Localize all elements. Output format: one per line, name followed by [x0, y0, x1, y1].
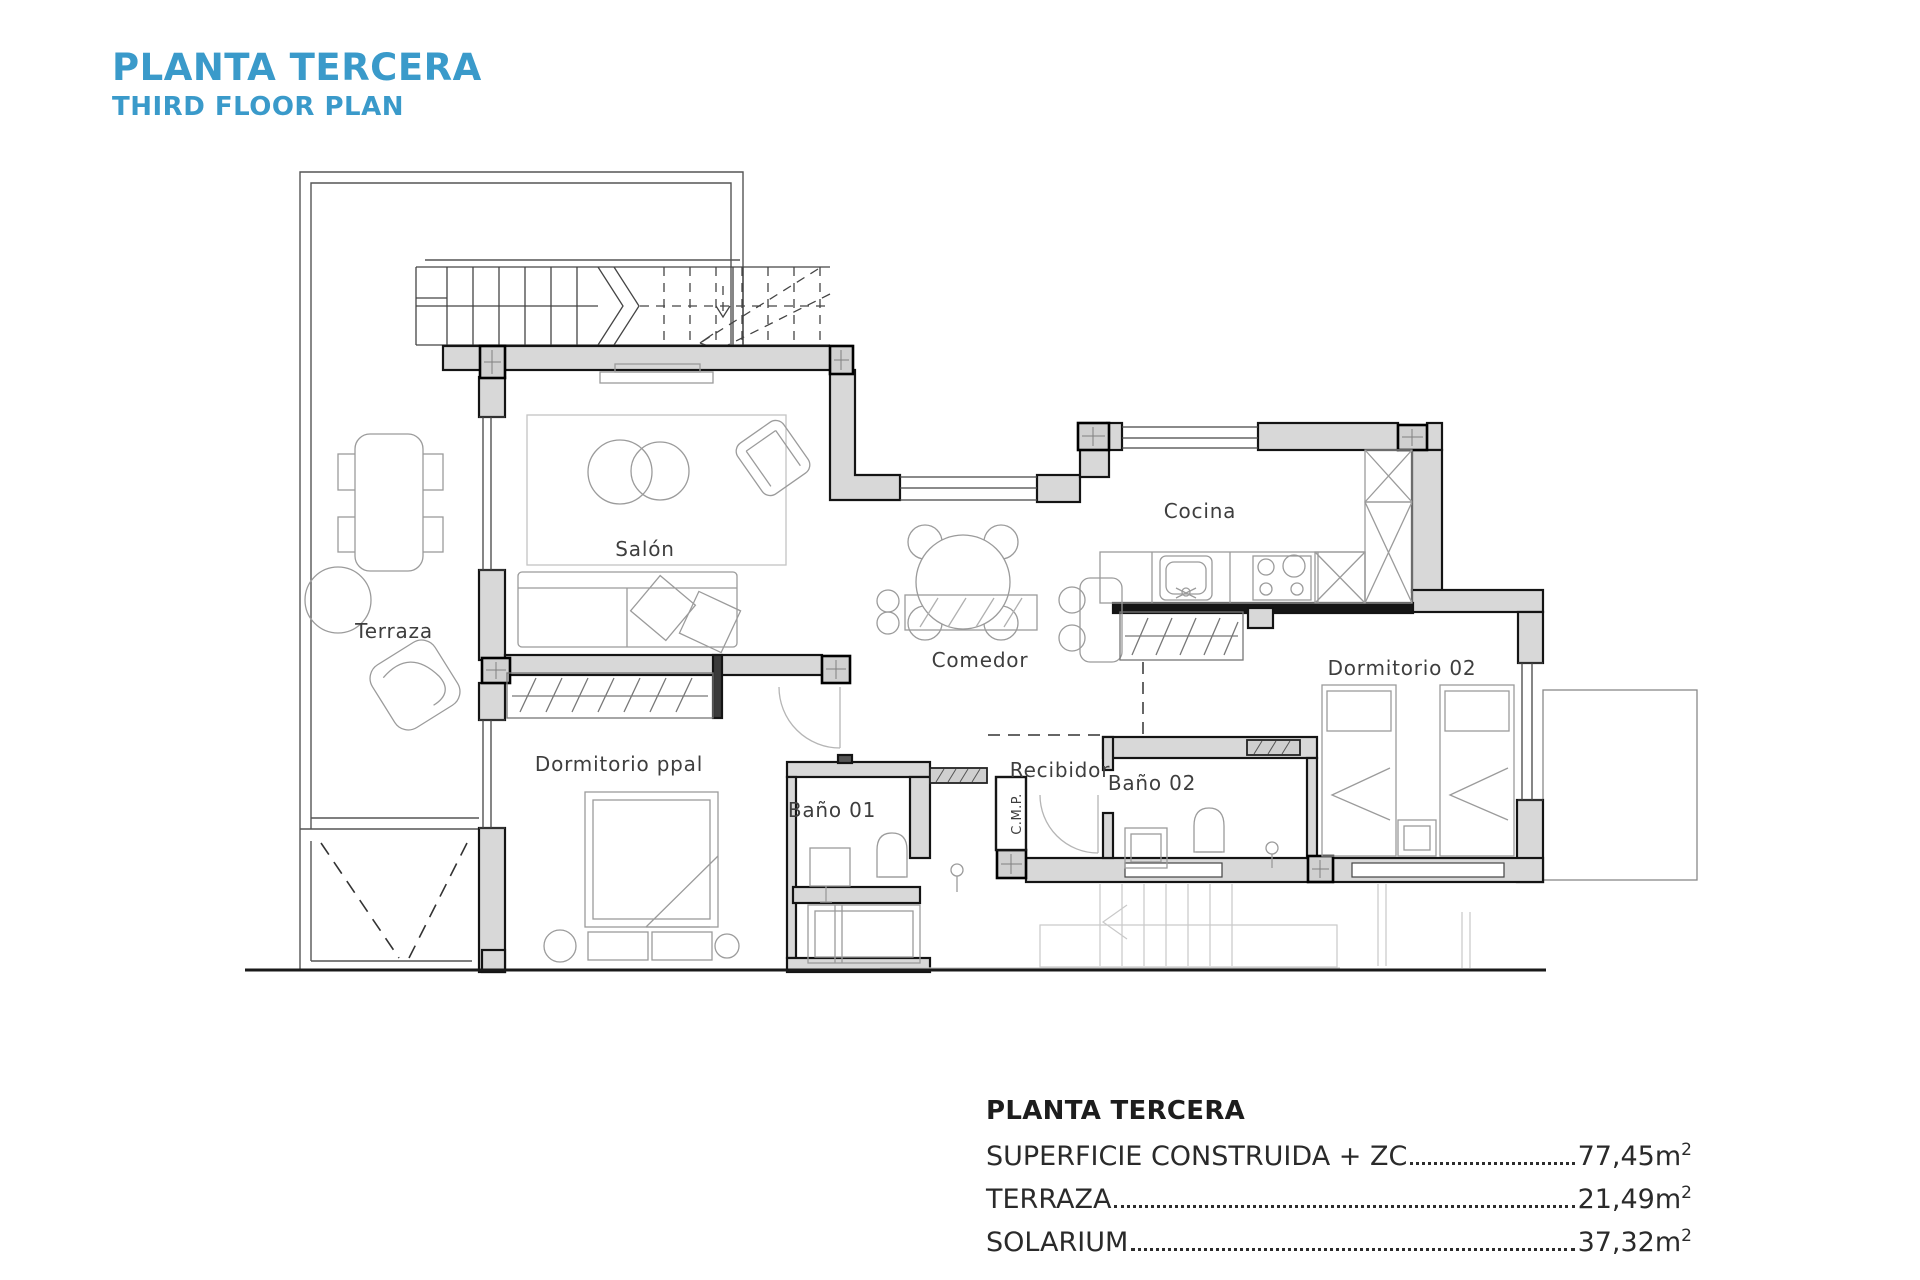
- dashed-partitions: [988, 662, 1143, 735]
- bed-ppal: [544, 792, 739, 962]
- room-label-bano-01: Baño 01: [788, 798, 876, 822]
- room-label-dormitorio-ppal: Dormitorio ppal: [535, 752, 703, 776]
- room-label-cmp: C.M.P.: [1010, 793, 1025, 835]
- stairs: [416, 267, 830, 347]
- area-legend: PLANTA TERCERA SUPERFICIE CONSTRUIDA + Z…: [986, 1096, 1692, 1261]
- room-label-comedor: Comedor: [932, 648, 1029, 672]
- kitchen-hob: [1253, 555, 1311, 600]
- legend-value: 37,32m2: [1578, 1218, 1692, 1261]
- neighbor-outline-right: [1543, 690, 1697, 880]
- terrace-lounge: [305, 567, 466, 736]
- legend-label: SOLARIUM: [986, 1225, 1128, 1261]
- dining-table: [908, 525, 1018, 640]
- hall-wardrobe: [1120, 612, 1243, 660]
- floor-plan-canvas: Terraza Salón Comedor Cocina Dormitorio …: [0, 0, 1920, 1280]
- floor-plan-page: PLANTA TERCERA THIRD FLOOR PLAN: [0, 0, 1920, 1280]
- legend-label: TERRAZA: [986, 1182, 1111, 1218]
- shower01: [808, 905, 920, 963]
- room-label-recibidor: Recibidor: [1010, 758, 1110, 782]
- beds-dorm02: [1322, 685, 1514, 856]
- kitchen-counter: [1100, 552, 1365, 603]
- dot-leader: [1114, 1205, 1574, 1208]
- legend-row-terraza: TERRAZA 21,49m2: [986, 1175, 1692, 1218]
- terrace-dining-table: [338, 434, 443, 571]
- dot-leader: [1410, 1162, 1574, 1165]
- salon-armchair: [732, 417, 813, 500]
- dot-leader: [1131, 1248, 1574, 1251]
- legend-row-superficie: SUPERFICIE CONSTRUIDA + ZC 77,45m2: [986, 1132, 1692, 1175]
- kitchen-cabinets: [1315, 450, 1412, 603]
- room-label-bano-02: Baño 02: [1108, 771, 1196, 795]
- legend-value: 21,49m2: [1578, 1175, 1692, 1218]
- legend-row-solarium: SOLARIUM 37,32m2: [986, 1218, 1692, 1261]
- legend-heading: PLANTA TERCERA: [986, 1096, 1692, 1126]
- legend-value: 77,45m2: [1578, 1132, 1692, 1175]
- salon-sofa: [518, 572, 741, 653]
- room-label-salon: Salón: [615, 537, 674, 561]
- closet-ppal: [507, 673, 713, 718]
- lower-floor-ghost: [880, 884, 1470, 968]
- room-label-cocina: Cocina: [1164, 499, 1237, 523]
- kitchen-table: [1059, 578, 1122, 662]
- room-label-dormitorio-02: Dormitorio 02: [1328, 656, 1477, 680]
- salon-side-tables: [588, 440, 689, 504]
- kitchen-sink: [1160, 556, 1212, 600]
- legend-label: SUPERFICIE CONSTRUIDA + ZC: [986, 1139, 1407, 1175]
- room-label-terraza: Terraza: [354, 619, 433, 643]
- below-terrace-void: [321, 843, 467, 958]
